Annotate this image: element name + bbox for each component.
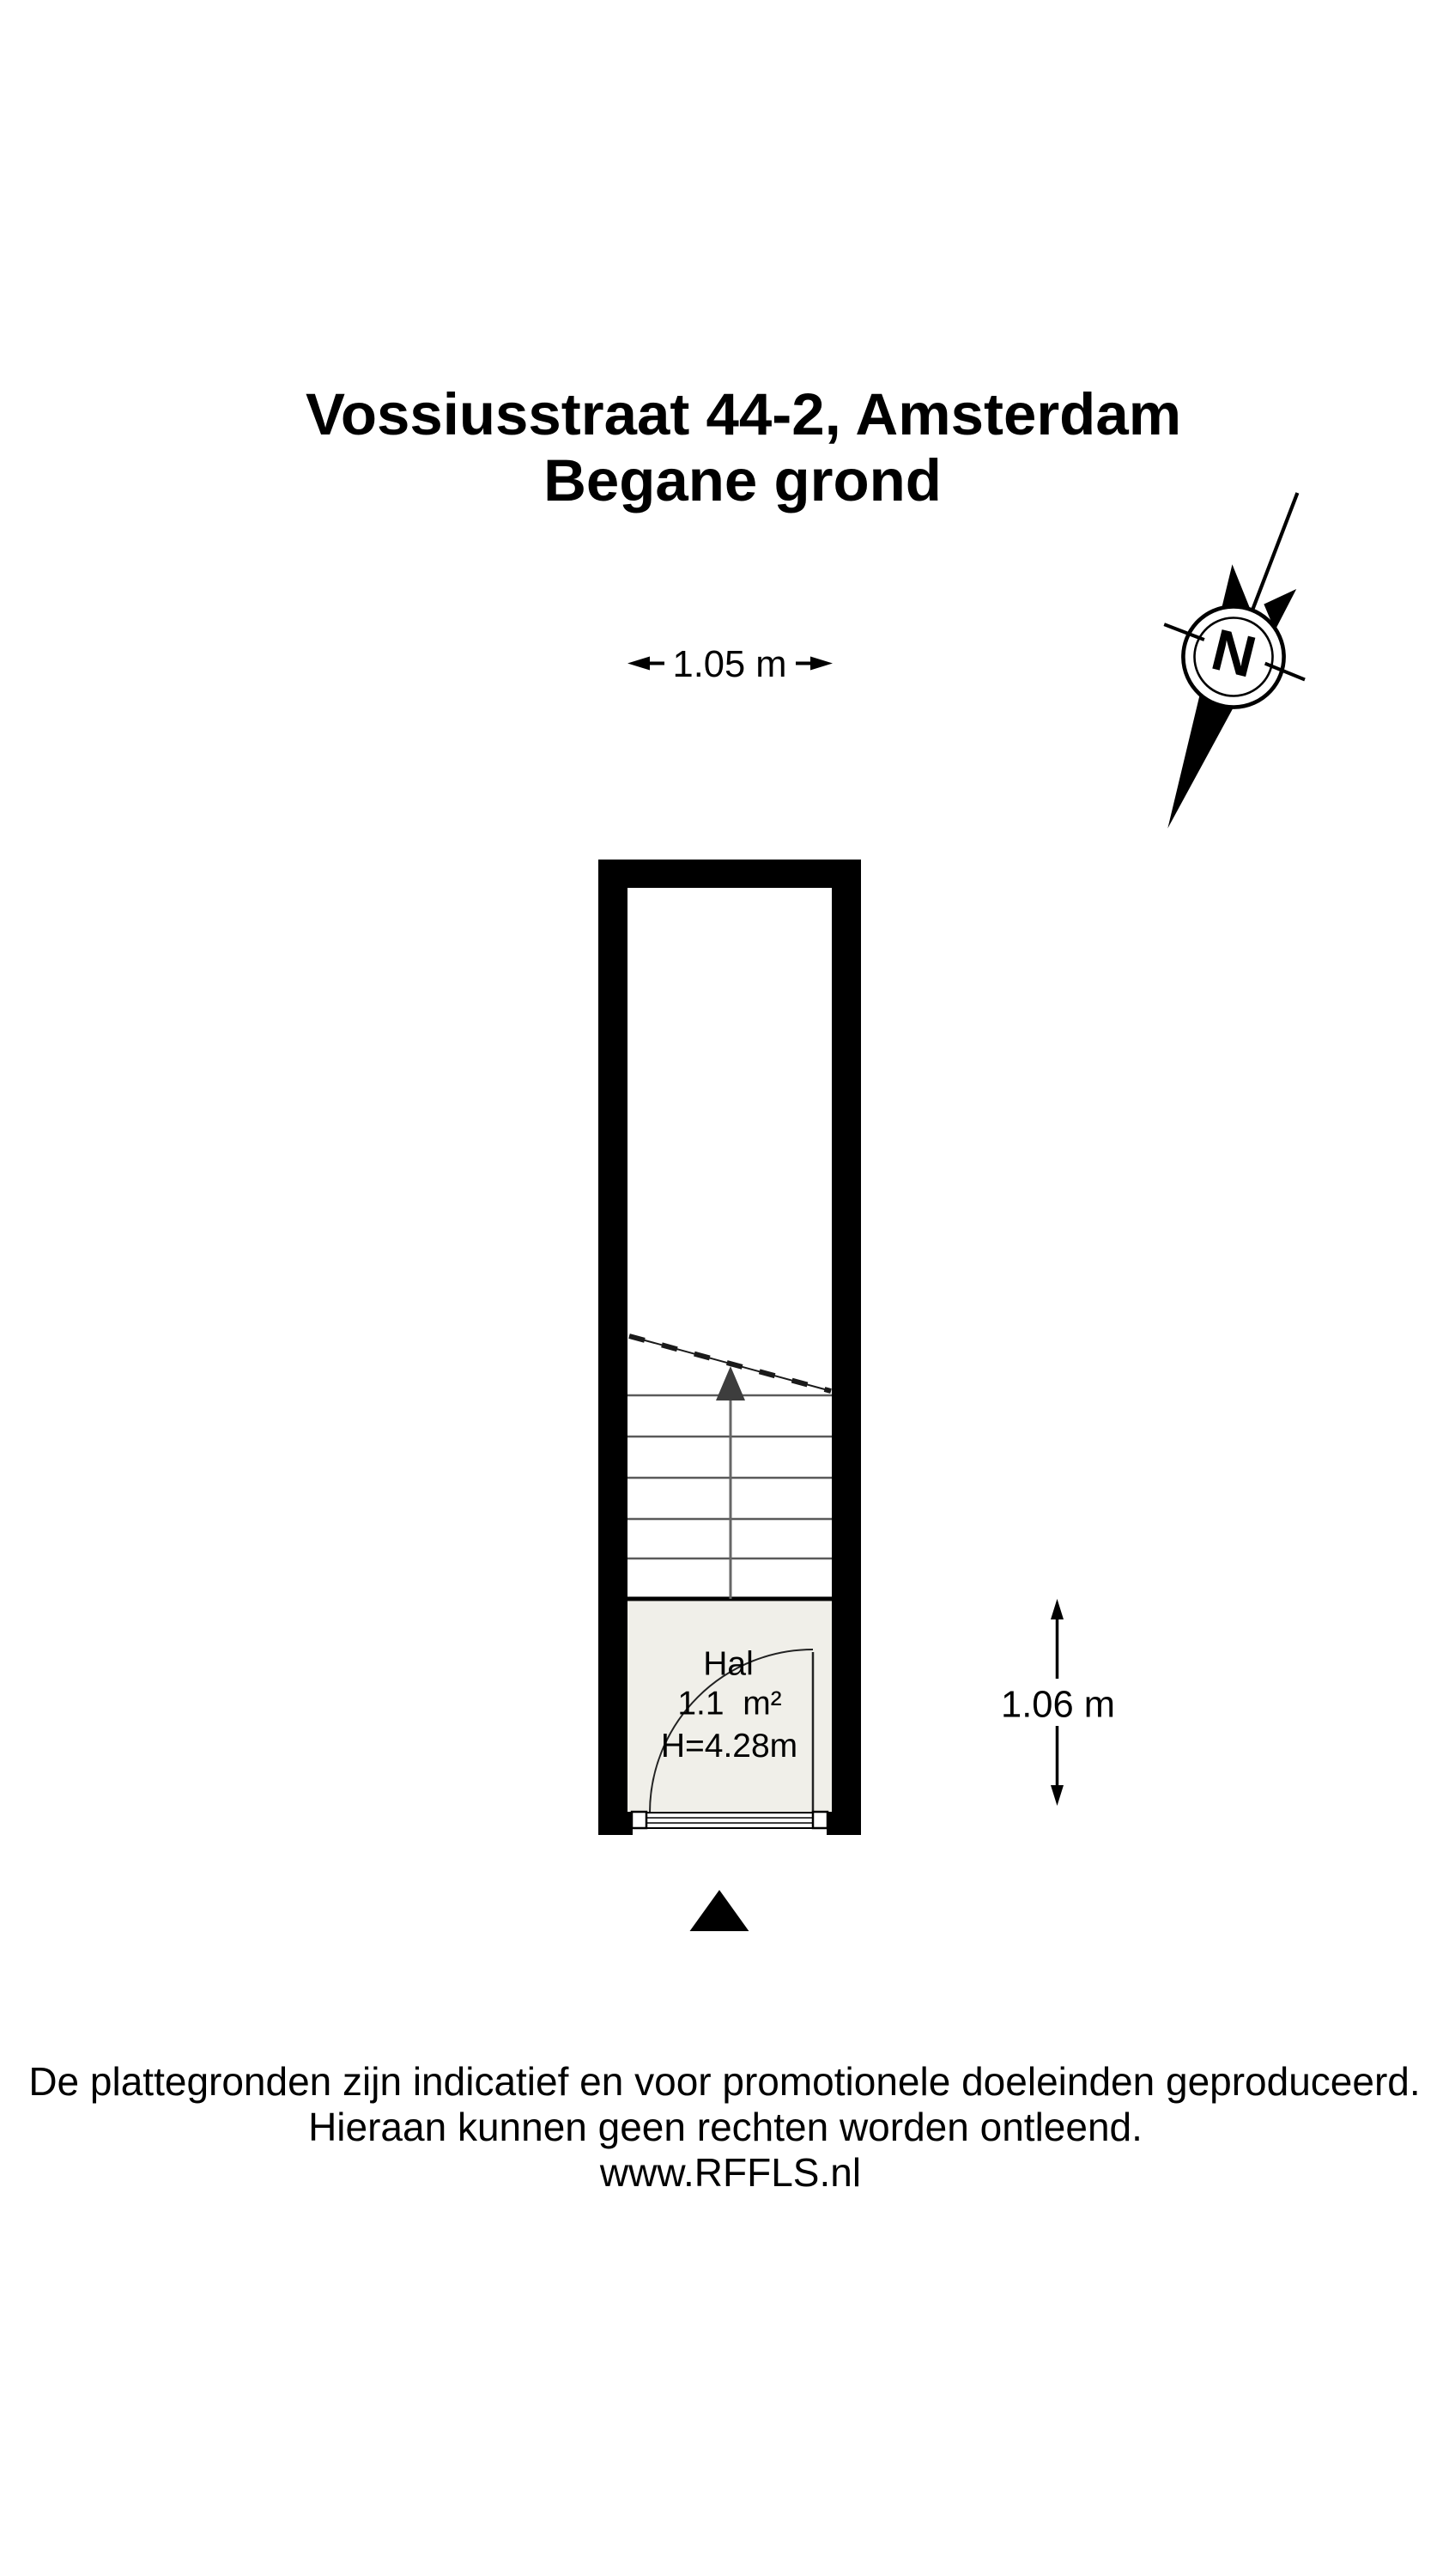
svg-text:1.1 m²: 1.1 m² (677, 1686, 781, 1722)
svg-text:Begane grond: Begane grond (543, 447, 942, 513)
svg-text:1.05 m: 1.05 m (673, 644, 787, 685)
svg-text:www.RFFLS.nl: www.RFFLS.nl (599, 2150, 861, 2195)
svg-text:Hal: Hal (703, 1646, 754, 1683)
svg-text:De plattegronden zijn indicati: De plattegronden zijn indicatief en voor… (28, 2059, 1420, 2104)
svg-text:Vossiusstraat 44-2, Amsterdam: Vossiusstraat 44-2, Amsterdam (306, 381, 1181, 447)
svg-text:Hieraan kunnen geen rechten wo: Hieraan kunnen geen rechten worden ontle… (308, 2105, 1143, 2149)
svg-text:1.06 m: 1.06 m (1001, 1685, 1115, 1726)
svg-text:H=4.28m: H=4.28m (661, 1728, 797, 1765)
